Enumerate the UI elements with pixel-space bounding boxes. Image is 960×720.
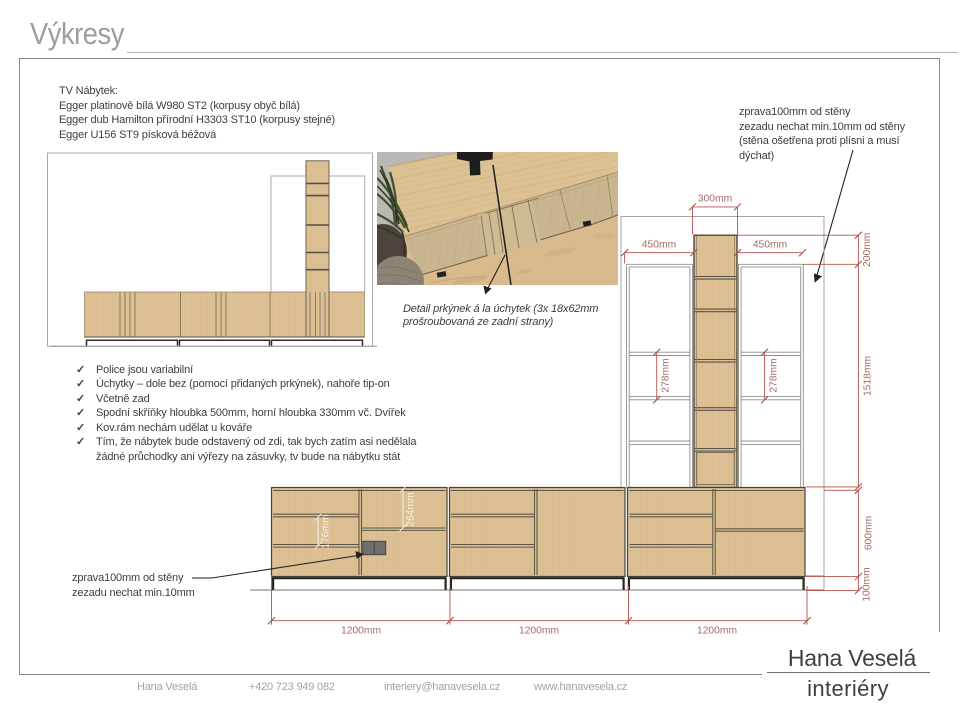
svg-text:600mm: 600mm: [864, 516, 875, 550]
svg-text:1518mm: 1518mm: [863, 356, 874, 396]
svg-text:450mm: 450mm: [642, 239, 676, 250]
svg-text:100mm: 100mm: [862, 567, 873, 601]
svg-text:450mm: 450mm: [753, 239, 787, 250]
svg-text:278mm: 278mm: [769, 358, 780, 392]
svg-text:300mm: 300mm: [698, 194, 732, 205]
svg-text:200mm: 200mm: [862, 233, 873, 267]
svg-text:1200mm: 1200mm: [519, 626, 559, 637]
svg-text:1200mm: 1200mm: [697, 626, 737, 637]
svg-text:176mm: 176mm: [321, 514, 332, 548]
svg-text:264mm: 264mm: [406, 492, 417, 526]
svg-text:278mm: 278mm: [661, 358, 672, 392]
svg-text:1200mm: 1200mm: [341, 626, 381, 637]
